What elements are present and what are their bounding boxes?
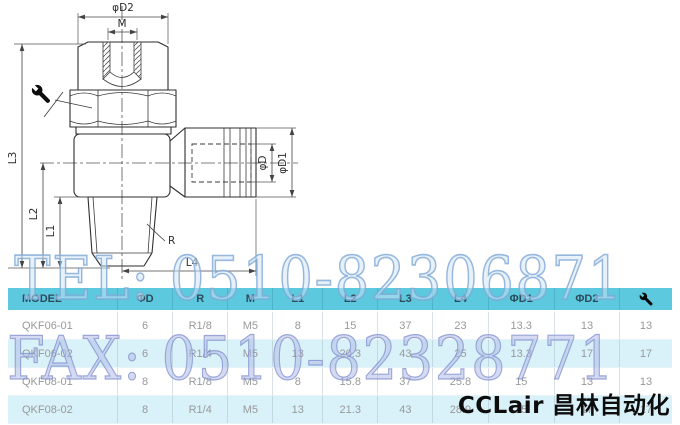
- value-cell: 15: [323, 311, 378, 340]
- dim-label-d2: φD2: [112, 2, 134, 14]
- value-cell: 37: [378, 311, 433, 340]
- value-cell: 17: [619, 340, 672, 368]
- value-cell: 21.3: [323, 396, 378, 424]
- table-row: QKF06-026R1/4M51320.3432513.31717: [8, 340, 672, 368]
- col-header-l4: L4: [433, 288, 488, 311]
- value-cell: 13: [273, 340, 323, 368]
- col-header-l1: L1: [273, 288, 323, 311]
- hex-nut: [70, 90, 176, 127]
- threaded-stem: [88, 197, 157, 266]
- washer: [76, 127, 171, 134]
- model-cell: QKF08-02: [8, 396, 118, 424]
- dim-label-l4: L4: [186, 257, 199, 269]
- dim-label-l3: L3: [7, 152, 19, 165]
- value-cell: R1/8: [173, 311, 228, 340]
- col-header-l2: L2: [323, 288, 378, 311]
- model-cell: QKF06-02: [8, 340, 118, 368]
- valve-body: [74, 134, 170, 197]
- value-cell: M5: [228, 340, 273, 368]
- value-cell: 20.3: [323, 340, 378, 368]
- model-cell: QKF08-01: [8, 368, 118, 396]
- value-cell: 13.3: [488, 311, 554, 340]
- col-header-model: MODEL: [8, 288, 118, 311]
- value-cell: 6: [118, 311, 173, 340]
- col-header-d: ΦD: [118, 288, 173, 311]
- value-cell: 43: [378, 340, 433, 368]
- callout-strike-line: [44, 92, 63, 117]
- value-cell: 23: [433, 311, 488, 340]
- value-cell: 13: [273, 396, 323, 424]
- col-header-m: M: [228, 288, 273, 311]
- catalog-page: φD2 M φD φD1 L3 L2: [0, 0, 680, 425]
- technical-drawing: φD2 M φD φD1 L3 L2: [0, 0, 310, 290]
- dim-r: R: [147, 224, 175, 247]
- wrench-icon: [32, 85, 50, 103]
- dim-l3: L3: [7, 44, 110, 268]
- value-cell: M5: [228, 311, 273, 340]
- value-cell: 8: [273, 311, 323, 340]
- value-cell: 13: [619, 311, 672, 340]
- value-cell: M5: [228, 368, 273, 396]
- table-row: QKF06-016R1/8M5815372313.31313: [8, 311, 672, 340]
- value-cell: R1/4: [173, 396, 228, 424]
- value-cell: 8: [273, 368, 323, 396]
- value-cell: 6: [118, 340, 173, 368]
- dim-label-d: φD: [257, 155, 269, 170]
- col-header-l3: L3: [378, 288, 433, 311]
- col-header-wrench: [619, 288, 672, 311]
- dim-label-l2: L2: [28, 208, 40, 221]
- dim-label-m: M: [117, 18, 126, 30]
- dim-label-d1: φD1: [277, 152, 289, 174]
- dim-m: M: [108, 18, 137, 40]
- value-cell: 8: [118, 396, 173, 424]
- header-row: MODEL ΦD R M L1 L2 L3 L4 ΦD1 ΦD2: [8, 288, 672, 311]
- value-cell: M5: [228, 396, 273, 424]
- col-header-d2: ΦD2: [554, 288, 619, 311]
- value-cell: 15.8: [323, 368, 378, 396]
- value-cell: R1/4: [173, 340, 228, 368]
- value-cell: 37: [378, 368, 433, 396]
- value-cell: 13.3: [488, 340, 554, 368]
- value-cell: 17: [554, 340, 619, 368]
- dim-label-r: R: [168, 235, 175, 247]
- col-header-r: R: [173, 288, 228, 311]
- col-header-d1: ΦD1: [488, 288, 554, 311]
- value-cell: 43: [378, 396, 433, 424]
- dim-l4: L4: [122, 199, 256, 276]
- wrench-icon: [639, 292, 653, 306]
- cap-section: [78, 42, 168, 90]
- model-cell: QKF06-01: [8, 311, 118, 340]
- value-cell: R1/8: [173, 368, 228, 396]
- brand-logo: CCLair 昌林自动化: [458, 386, 670, 420]
- dim-label-l1: L1: [45, 225, 57, 238]
- dim-l2: L2: [28, 163, 43, 268]
- value-cell: 25: [433, 340, 488, 368]
- dim-l1: L1: [45, 197, 88, 268]
- value-cell: 8: [118, 368, 173, 396]
- callout-leader-line: [55, 100, 92, 108]
- value-cell: 13: [554, 311, 619, 340]
- tube-connector: [170, 128, 256, 197]
